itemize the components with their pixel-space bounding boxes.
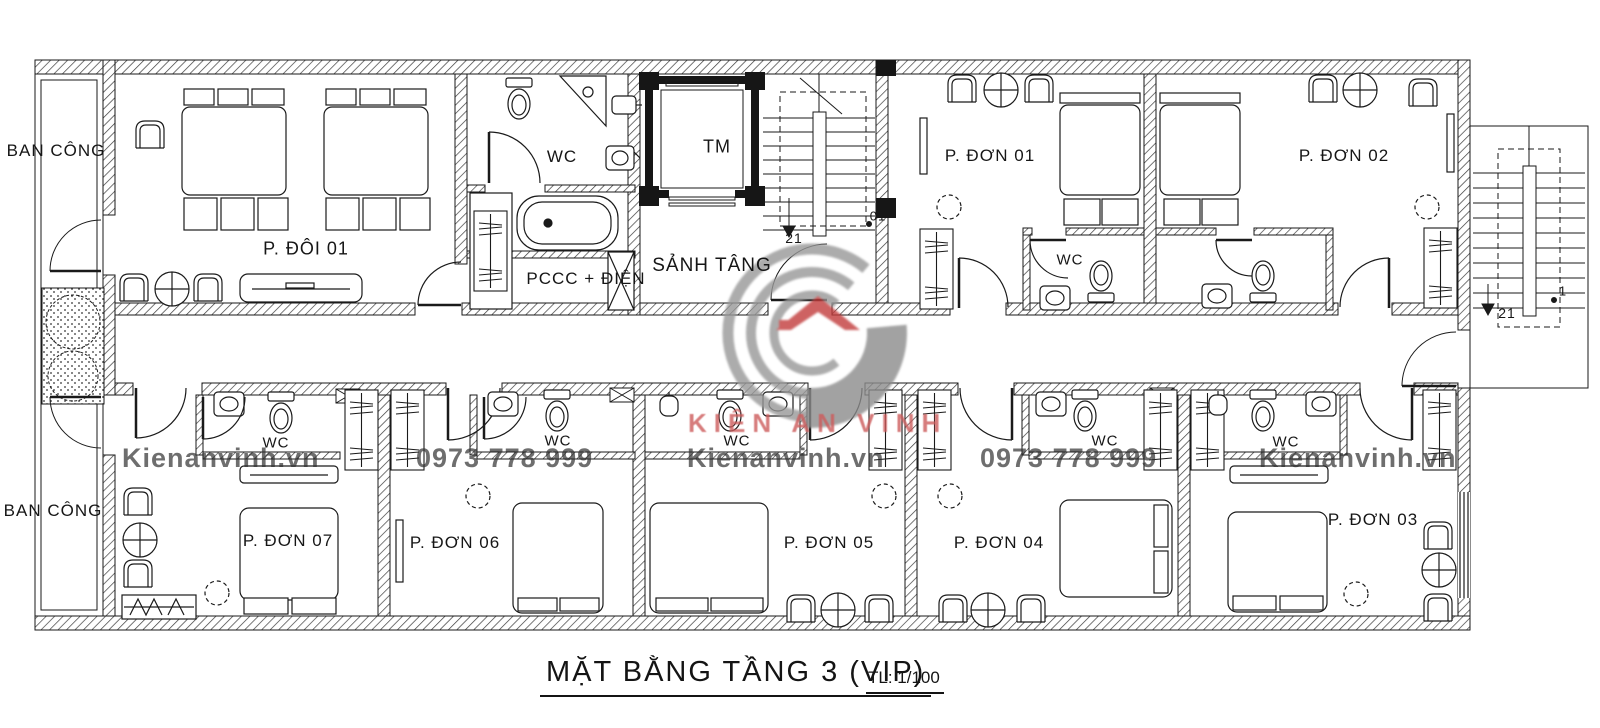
toilet-icon [268, 392, 294, 433]
room-p-don-04 [918, 388, 1177, 627]
watermark-brand: KIÊN AN VINH [688, 408, 947, 439]
door-arc [1360, 388, 1412, 440]
sink-icon [1202, 284, 1232, 308]
label-elevator: TM [703, 137, 731, 158]
door-arc [1340, 258, 1389, 307]
door-arc [1402, 332, 1456, 386]
single-bed [513, 503, 603, 613]
double-bed [182, 89, 288, 230]
room-p-don-07 [122, 388, 378, 619]
chair-icon [1017, 595, 1045, 622]
toilet-icon [1250, 390, 1276, 431]
wardrobe-icon [1424, 228, 1457, 308]
stool-icon [466, 484, 490, 508]
label-room-p-doi-01: P. ĐÔI 01 [263, 239, 349, 260]
label-utility: PCCC + ĐIỆN [526, 269, 645, 289]
luggage-rack [122, 595, 196, 619]
toilet-icon [506, 78, 532, 119]
chair-icon [865, 595, 893, 622]
wardrobe-icon [474, 211, 507, 291]
single-bed [1060, 500, 1172, 597]
room-p-doi-01 [120, 89, 461, 306]
wall-bottom [35, 616, 1470, 630]
arrow-down-icon [1482, 304, 1494, 315]
watermark-phone: 0973 778 999 [980, 443, 1157, 474]
bathtub-icon [517, 196, 618, 250]
round-table-icon [155, 272, 189, 306]
label-stair-inner-21: 21 [785, 230, 803, 246]
room-p-don-06 [391, 388, 634, 613]
label-room-p-don-02: P. ĐƠN 02 [1299, 146, 1389, 166]
chair-icon [939, 595, 967, 622]
label-stair-outer-21: 21 [1498, 305, 1516, 321]
tree-icon [48, 351, 98, 401]
tree-icon [46, 295, 100, 349]
label-wc-r01: WC [1057, 252, 1084, 269]
label-balcony-top: BAN CÔNG [7, 141, 106, 161]
label-stair-outer-1: 1 [1559, 284, 1567, 299]
sink-icon [488, 392, 518, 416]
sink-icon [1036, 392, 1066, 416]
single-bed [1160, 93, 1240, 225]
break-line [800, 78, 842, 114]
room-p-don-02 [1160, 73, 1457, 308]
label-room-p-don-03: P. ĐƠN 03 [1328, 510, 1418, 530]
floorplan-canvas: BAN CÔNG BAN CÔNG P. ĐÔI 01 WC TM PCCC +… [0, 0, 1600, 728]
single-bed [240, 508, 338, 614]
door-arc [489, 132, 540, 183]
watermark-site: Kienanvinh.vn [1259, 443, 1457, 474]
stool-icon [1415, 195, 1439, 219]
chair-icon [1424, 594, 1452, 621]
chair-icon [136, 121, 164, 148]
wardrobe-icon [345, 390, 378, 470]
window [1458, 492, 1470, 598]
label-lobby: SẢNH TÂNG [652, 255, 772, 277]
wardrobe-icon [920, 229, 953, 309]
wall-left [103, 60, 115, 215]
stool-icon [872, 484, 896, 508]
door-arc [1216, 240, 1252, 276]
vent-icon [610, 388, 634, 402]
door-arc [418, 262, 461, 305]
single-bed [1228, 512, 1327, 612]
sink-icon [660, 392, 678, 416]
chair-icon [1309, 75, 1337, 102]
label-wc-main: WC [547, 147, 577, 167]
desk [396, 520, 403, 582]
label-room-p-don-04: P. ĐƠN 04 [954, 533, 1044, 553]
toilet-icon [1088, 261, 1114, 302]
elevator-door [669, 197, 735, 200]
watermark-site: Kienanvinh.vn [122, 443, 320, 474]
double-bed [324, 89, 430, 230]
chair-icon [1409, 79, 1437, 106]
console-table [240, 274, 362, 302]
chair-icon [124, 488, 152, 515]
stool-icon [937, 195, 961, 219]
sink-icon [1306, 392, 1336, 416]
stair-rail [813, 112, 826, 236]
round-table-icon [971, 593, 1005, 627]
label-balcony-bottom: BAN CÔNG [4, 501, 103, 521]
stair-rail [1523, 166, 1536, 316]
door-arc [136, 388, 186, 438]
door-arc [960, 388, 1012, 440]
chair-icon [787, 595, 815, 622]
chair-icon [1025, 75, 1053, 102]
round-table-icon [123, 523, 157, 557]
wall-right [1458, 60, 1470, 330]
stool-icon [1344, 582, 1368, 606]
corridor-wall-bottom [115, 383, 133, 395]
hand-sink [612, 96, 636, 114]
floorplan-drawing [0, 0, 1600, 728]
door-arc [959, 258, 1008, 307]
watermark-site: Kienanvinh.vn [687, 443, 885, 474]
round-table-icon [821, 593, 855, 627]
label-room-p-don-01: P. ĐƠN 01 [945, 146, 1035, 166]
chair-icon [120, 274, 148, 301]
logo-arc [751, 272, 851, 394]
single-bed [1060, 93, 1140, 225]
toilet-icon [1072, 390, 1098, 431]
room-p-don-03 [1191, 388, 1470, 621]
watermark-phone: 0973 778 999 [416, 443, 593, 474]
label-stair-inner-01: 01 [870, 209, 886, 224]
chair-icon [1424, 522, 1452, 549]
elevator [639, 72, 765, 206]
label-room-p-don-07: P. ĐƠN 07 [243, 531, 333, 551]
desk [920, 118, 927, 174]
drawing-scale: TL: 1/100 [866, 668, 944, 694]
wall-top [35, 60, 1470, 74]
round-table-icon [1422, 553, 1456, 587]
toilet-icon [544, 390, 570, 431]
desk [1447, 114, 1454, 172]
shower-corner [560, 76, 606, 126]
stool-icon [205, 581, 229, 605]
chair-icon [948, 75, 976, 102]
sink-icon [1040, 286, 1070, 310]
round-table-icon [984, 73, 1018, 107]
label-room-p-don-06: P. ĐƠN 06 [410, 533, 500, 553]
corridor-wall-top [115, 303, 415, 315]
chair-icon [124, 560, 152, 587]
stool-icon [938, 484, 962, 508]
single-bed [650, 503, 768, 613]
sink-icon [214, 392, 244, 416]
round-table-icon [1343, 73, 1377, 107]
sink-icon [606, 146, 634, 170]
label-room-p-don-05: P. ĐƠN 05 [784, 533, 874, 553]
toilet-icon [1250, 261, 1276, 302]
chair-icon [194, 274, 222, 301]
